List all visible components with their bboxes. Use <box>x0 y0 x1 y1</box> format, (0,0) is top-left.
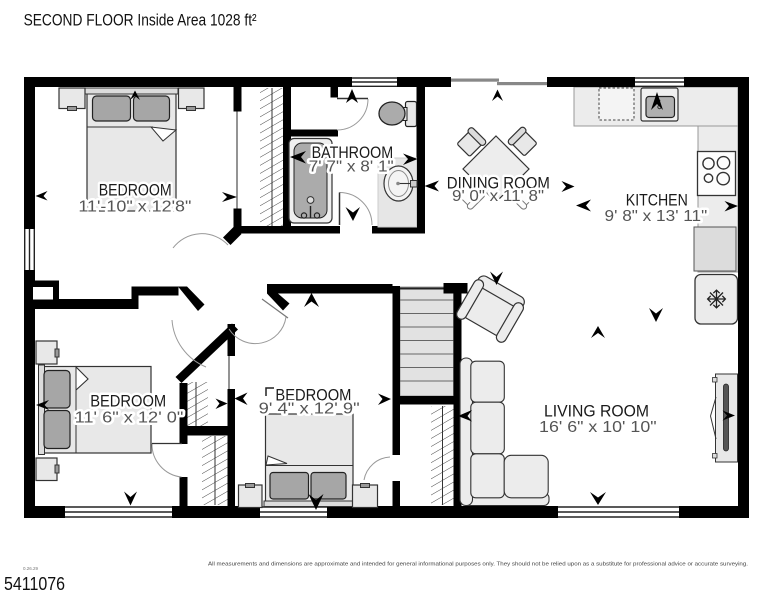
svg-text:16' 6" x 10' 10": 16' 6" x 10' 10" <box>539 419 657 436</box>
svg-text:7' 7" x 8' 1": 7' 7" x 8' 1" <box>309 158 394 175</box>
svg-text:BEDROOM: BEDROOM <box>90 393 166 411</box>
svg-text:11'-10" x 12'8": 11'-10" x 12'8" <box>78 198 191 215</box>
svg-text:9' 4" x 12' 9": 9' 4" x 12' 9" <box>259 400 360 417</box>
svg-text:11' 6" x 12' 0": 11' 6" x 12' 0" <box>75 410 184 427</box>
svg-text:All measurements and dimension: All measurements and dimensions are appr… <box>208 562 748 568</box>
svg-text:KITCHEN: KITCHEN <box>626 191 688 209</box>
svg-text:SECOND FLOOR Inside Area 1028: SECOND FLOOR Inside Area 1028 ft² <box>24 10 257 29</box>
svg-text:BEDROOM: BEDROOM <box>99 182 172 200</box>
svg-text:5411076: 5411076 <box>4 574 65 594</box>
svg-text:9' 0" x 11' 8": 9' 0" x 11' 8" <box>452 188 544 205</box>
svg-text:9' 8" x 13' 11": 9' 8" x 13' 11" <box>605 208 708 225</box>
svg-text:0.26.29: 0.26.29 <box>23 566 39 571</box>
